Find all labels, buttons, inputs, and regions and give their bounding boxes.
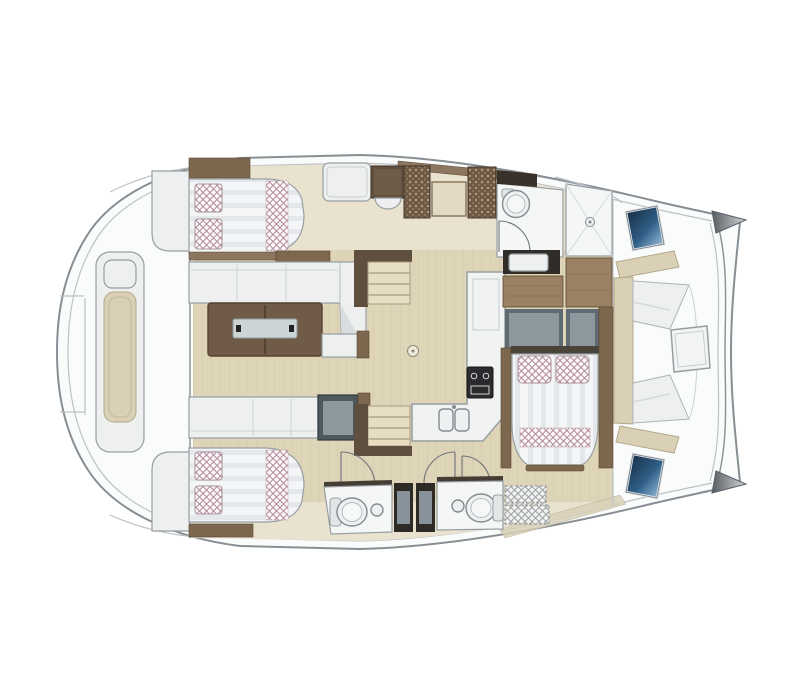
dresser-right [566, 258, 612, 307]
aft-bench-headrest [104, 260, 136, 288]
floor-plan-page [0, 0, 800, 700]
vanity-sink [509, 254, 548, 271]
pillow [518, 356, 551, 383]
wicker-locker [468, 167, 496, 218]
storage-hatch-cushion [505, 505, 549, 524]
toilet-room-wall [497, 170, 537, 187]
bed-foot-band-port-aft [266, 450, 288, 520]
pillow [556, 356, 589, 383]
pillow [195, 452, 222, 480]
sink-faucet [452, 405, 456, 409]
toilet-tank [493, 495, 503, 521]
aft-deck-panel-bottom [152, 452, 190, 531]
sink-round [452, 500, 464, 512]
table-latch [236, 325, 241, 332]
pillow [195, 219, 222, 249]
wardrobe-inner [509, 313, 559, 347]
storage-hatch-cushion [505, 486, 546, 503]
owner-bed-foot-wood [526, 465, 584, 471]
owner-headboard [511, 346, 599, 354]
bed-base-strip [189, 252, 277, 260]
catamaran-floor-plan [0, 0, 800, 700]
toilet-bowl-inner [507, 195, 525, 213]
tv-cabinet-inner [323, 401, 353, 435]
sink-basin [455, 409, 469, 431]
stairs-aft-wall [354, 446, 412, 456]
cockpit-cushion-left [614, 277, 633, 424]
toilet-bowl-inner [471, 499, 491, 518]
dresser-left [503, 276, 563, 307]
bed-foot-band-port-fwd [266, 181, 288, 251]
bed-base-strip-aft [189, 524, 253, 537]
bed-side-wood-right [599, 307, 613, 468]
side-table [322, 334, 358, 357]
counter-block [432, 182, 466, 216]
door-panel-inner [397, 491, 410, 524]
sink-round [371, 504, 383, 516]
pillow [195, 184, 222, 212]
headboard-port-fwd [189, 158, 250, 178]
wardrobe-inner [570, 313, 595, 349]
aft-deck-panel-top [152, 171, 190, 251]
stairs-aft [368, 406, 410, 446]
stairs-forward [368, 262, 410, 304]
chart-seat-box [323, 163, 371, 201]
toilet-bowl-inner [342, 503, 362, 522]
owner-cabin [501, 250, 613, 471]
bed-side-wood-left [501, 348, 511, 468]
salon [189, 262, 370, 442]
table-inset [233, 319, 297, 338]
side-table-wood [357, 331, 369, 358]
deck-filler-dot [412, 350, 415, 353]
sink-basin [439, 409, 453, 431]
pillow [195, 486, 222, 514]
table-latch [289, 325, 294, 332]
cabinet-block-inner [374, 169, 401, 195]
salon-sofa [189, 262, 340, 303]
door-panel-inner [419, 491, 432, 524]
wicker-locker [404, 166, 430, 218]
shower-drain-dot [589, 221, 592, 224]
owner-bed-foot-band [520, 428, 590, 447]
stairs-fwd-wall-side [354, 250, 368, 307]
